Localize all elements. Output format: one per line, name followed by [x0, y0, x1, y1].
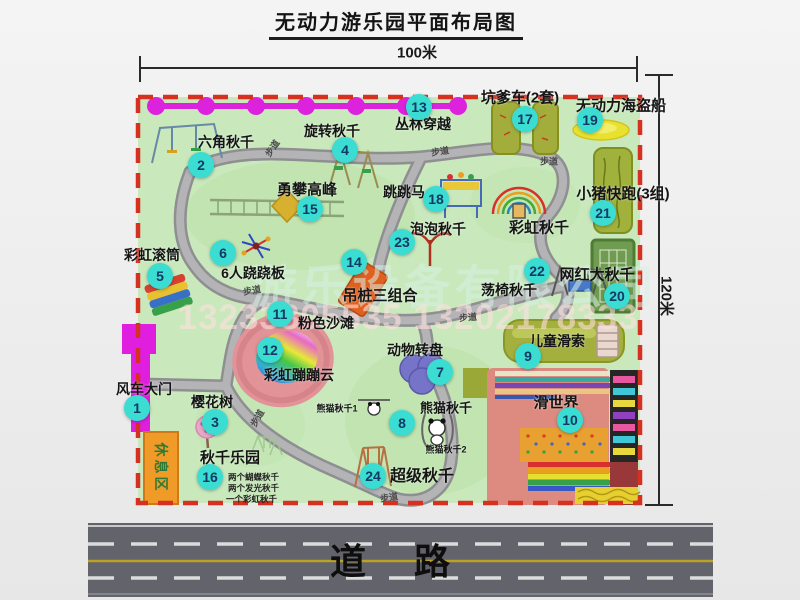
rest-area-label: 休息区 — [151, 443, 171, 494]
attraction-label-rainbow-cloud: 彩虹蹦蹦云 — [264, 365, 334, 385]
attraction-label-seesaw: 6人跷跷板 — [221, 263, 285, 283]
attraction-label-swing-chair: 荡椅秋千 — [481, 280, 537, 300]
attraction-badge-12: 12 — [257, 337, 283, 363]
walkway-label: 步道 — [540, 155, 558, 168]
road-label: 道路 — [330, 533, 498, 585]
walkway-label: 步道 — [458, 310, 477, 325]
attraction-label-animal-carousel: 动物转盘 — [387, 340, 443, 360]
attraction-badge-15: 15 — [297, 196, 323, 222]
walkway-label: 步道 — [430, 143, 450, 158]
attraction-badge-19: 19 — [577, 107, 603, 133]
attraction-badge-16: 16 — [197, 464, 223, 490]
attraction-badge-5: 5 — [147, 263, 173, 289]
park-layout-map: 游乐设备有限公司 13233805535 13202178333 无动力游乐园平… — [0, 0, 800, 600]
attraction-badge-3: 3 — [202, 409, 228, 435]
slide-world-shape — [463, 368, 640, 505]
attraction-badge-7: 7 — [427, 359, 453, 385]
attraction-badge-22: 22 — [524, 258, 550, 284]
attraction-badge-13: 13 — [406, 94, 432, 120]
attraction-label-pink-beach: 粉色沙滩 — [298, 313, 354, 333]
attraction-badge-11: 11 — [267, 301, 293, 327]
swing-park-note-3: 一个彩虹秋千 — [226, 493, 277, 505]
attraction-badge-23: 23 — [389, 229, 415, 255]
attraction-label-rainbow-swing: 彩虹秋千 — [509, 217, 569, 238]
attraction-label-super-swing: 超级秋千 — [390, 462, 454, 486]
attraction-label-jumping-horse: 跳跳马 — [383, 182, 425, 202]
attraction-label-hanging-piles: 吊桩三组合 — [342, 285, 417, 306]
attraction-label-bubble-swing: 泡泡秋千 — [410, 219, 466, 239]
attraction-badge-20: 20 — [604, 283, 630, 309]
attraction-label-bumpy-car: 坑爹车(2套) — [481, 87, 559, 108]
width-dimension-label: 100米 — [397, 42, 437, 63]
walkway-label: 步道 — [379, 489, 399, 504]
attraction-badge-18: 18 — [423, 186, 449, 212]
attraction-badge-24: 24 — [360, 463, 386, 489]
attraction-label-hexagon-swing: 六角秋千 — [198, 132, 254, 152]
attraction-badge-4: 4 — [332, 137, 358, 163]
attraction-label-piggy-run: 小猪快跑(3组) — [576, 183, 669, 204]
attraction-label-windmill-gate: 风车大门 — [116, 379, 172, 399]
page-title: 无动力游乐园平面布局图 — [269, 6, 523, 40]
attraction-badge-2: 2 — [188, 152, 214, 178]
attraction-badge-21: 21 — [590, 200, 616, 226]
attraction-label-panda-swing-1: 熊猫秋千1 — [316, 402, 357, 415]
height-dimension-label: 120米 — [657, 276, 678, 316]
attraction-label-panda-swing: 熊猫秋千 — [420, 398, 472, 417]
attraction-badge-1: 1 — [124, 395, 150, 421]
attraction-badge-17: 17 — [512, 106, 538, 132]
attraction-badge-8: 8 — [389, 410, 415, 436]
attraction-badge-10: 10 — [557, 407, 583, 433]
attraction-label-big-net-swing: 网红大秋千 — [559, 264, 634, 285]
attraction-badge-6: 6 — [210, 240, 236, 266]
attraction-label-rainbow-roller: 彩虹滚筒 — [124, 245, 180, 265]
attraction-badge-14: 14 — [341, 249, 367, 275]
attraction-label-panda-swing-2: 熊猫秋千2 — [425, 443, 466, 456]
attraction-badge-9: 9 — [515, 343, 541, 369]
